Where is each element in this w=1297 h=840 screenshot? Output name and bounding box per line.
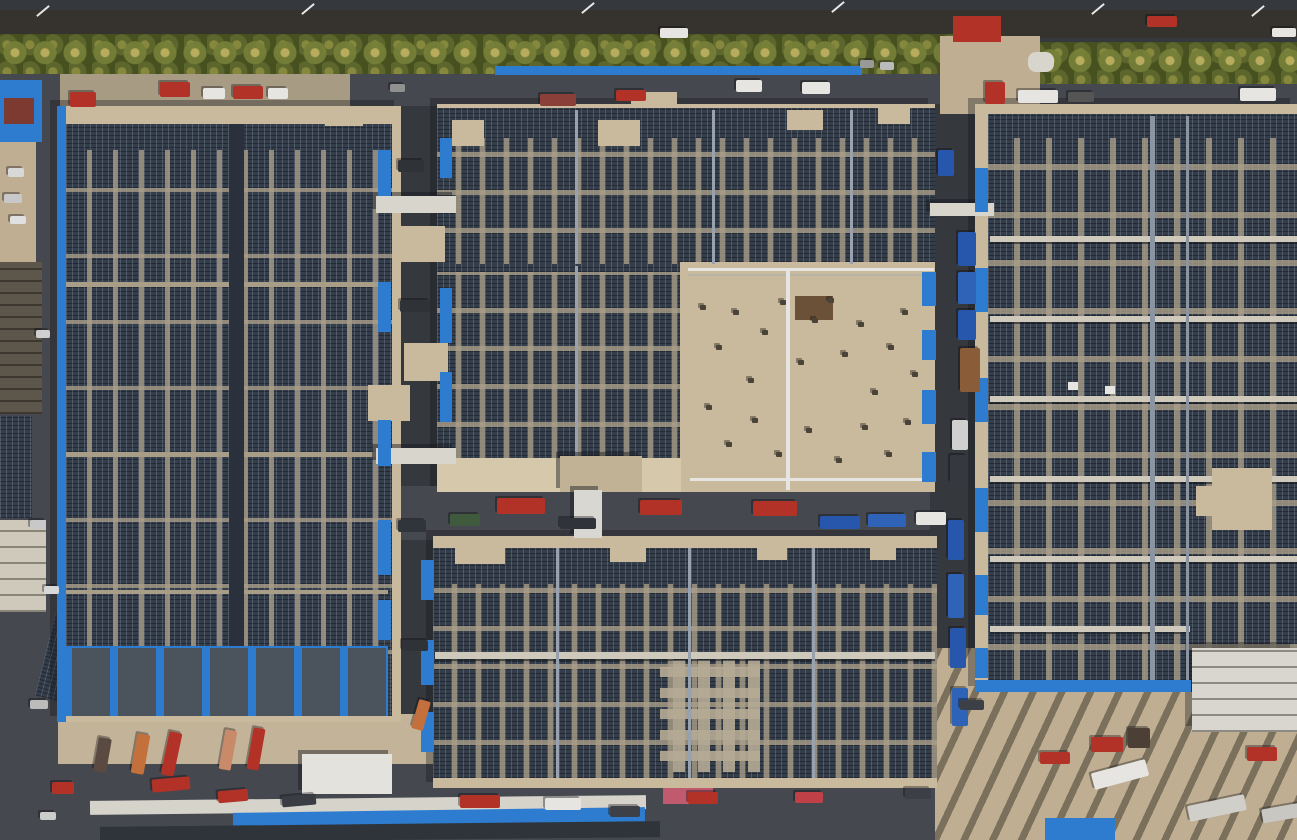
white-truck: [1240, 88, 1276, 101]
solar-walkway-grid: [437, 272, 681, 460]
hvac-unit: [776, 452, 782, 457]
blue-awning: [975, 488, 988, 532]
hvac-unit: [798, 360, 804, 365]
center-north-solar-left: [437, 264, 681, 460]
white-truck: [1018, 90, 1058, 103]
bridge-canopy: [560, 456, 642, 492]
hvac-unit: [842, 352, 848, 357]
red-truck-at-gate: [985, 82, 1005, 104]
roof-seam: [66, 452, 388, 457]
blue-trailer: [948, 520, 964, 560]
hvac-unit: [806, 428, 812, 433]
roof-ridge: [229, 124, 244, 716]
roof-structure: [455, 536, 505, 564]
red-container: [1091, 737, 1123, 752]
red-container-truck: [70, 92, 96, 107]
red-container-truck: [640, 500, 682, 515]
car: [4, 194, 22, 203]
hvac-unit: [872, 390, 878, 395]
dock-module: [164, 648, 202, 716]
roof-structure: [598, 120, 640, 146]
red-container-truck: [616, 90, 646, 101]
white-trailer: [952, 420, 968, 450]
red-container-truck: [753, 501, 797, 516]
dock-module: [302, 648, 340, 716]
roof-walkway: [990, 626, 1190, 632]
solar-walkway-grid: [988, 138, 1297, 692]
white-truck: [916, 512, 946, 525]
roof-seam: [812, 548, 815, 778]
red-container-truck: [1147, 16, 1177, 27]
blue-awning: [378, 600, 391, 640]
blue-awning: [440, 372, 452, 422]
red-container: [1040, 752, 1070, 764]
blue-awning: [421, 560, 434, 600]
dark-red-truck: [540, 94, 576, 106]
blue-awning: [922, 330, 936, 360]
solar-sparse-zone: [660, 660, 760, 772]
roof-walkway: [435, 652, 935, 659]
roof-pipe: [690, 478, 932, 481]
blue-awning: [975, 168, 988, 212]
dock-module: [72, 648, 110, 716]
equipment: [398, 160, 424, 172]
dock-module: [348, 648, 386, 716]
hvac-unit: [905, 420, 911, 425]
dark-truck: [1068, 92, 1094, 102]
dark-truck: [960, 700, 984, 710]
blue-trailer: [868, 514, 906, 527]
bridge-tower: [574, 490, 602, 538]
white-truck: [203, 88, 225, 99]
roof-seam: [850, 110, 853, 264]
dock-canopy: [400, 226, 445, 262]
blue-awning: [378, 150, 391, 196]
white-truck: [802, 82, 830, 94]
roof-seam: [712, 110, 715, 264]
red-truck: [795, 792, 823, 803]
south-blue-building: [1045, 818, 1115, 840]
skylight: [1105, 386, 1115, 394]
hvac-unit: [748, 378, 754, 383]
blue-awning: [440, 288, 452, 343]
roof-seam: [66, 590, 388, 594]
equipment: [400, 300, 430, 312]
roof-walkway: [990, 556, 1297, 562]
roof-pipe: [786, 268, 790, 490]
blue-trailer: [820, 516, 860, 529]
dock-module: [118, 648, 156, 716]
white-truck: [1272, 28, 1296, 37]
car: [8, 168, 24, 177]
green-truck: [450, 514, 480, 526]
roof-notch: [1196, 486, 1216, 516]
red-container-truck: [160, 82, 190, 97]
west-lot: [0, 142, 36, 264]
dark-container: [1128, 728, 1150, 748]
hvac-unit: [858, 322, 864, 327]
roof-structure: [128, 106, 174, 124]
roof-pipe: [688, 274, 934, 276]
car: [10, 216, 26, 224]
rust-container: [960, 348, 980, 392]
white-truck: [545, 798, 581, 810]
east-solar: [988, 114, 1297, 692]
dock-module: [256, 648, 294, 716]
west-sheds: [0, 520, 46, 612]
white-truck: [660, 28, 688, 38]
hvac-unit: [902, 310, 908, 315]
blue-awning: [975, 268, 988, 312]
roof-walkway: [990, 236, 1297, 242]
roof-seam: [575, 110, 578, 264]
blue-awning: [975, 575, 988, 615]
car: [880, 62, 894, 70]
center-north-south-strip: [437, 458, 681, 492]
red-container-truck: [233, 86, 263, 99]
roof-seam: [1186, 116, 1189, 692]
hvac-unit: [706, 405, 712, 410]
car: [30, 520, 46, 529]
blue-trailer: [938, 150, 954, 176]
white-truck: [268, 88, 288, 99]
dark-truck: [610, 806, 640, 817]
car: [40, 812, 56, 820]
roof-seam: [556, 548, 559, 778]
hvac-unit: [780, 300, 786, 305]
car: [860, 60, 874, 68]
right-building-blue-edge: [975, 680, 1191, 692]
hvac-unit: [886, 452, 892, 457]
west-small-buildings: [0, 262, 42, 414]
blue-fence: [495, 66, 862, 75]
center-south-solar: [433, 548, 937, 778]
roof-walkway: [990, 316, 1297, 322]
hvac-unit: [836, 458, 842, 463]
solar-walkway-grid: [437, 138, 935, 266]
roof-structure: [610, 538, 646, 562]
blue-trailer: [958, 310, 976, 340]
skylight: [1068, 382, 1078, 390]
roof-seam: [688, 548, 691, 778]
west-solar-array: [0, 416, 32, 518]
equipment: [402, 640, 428, 651]
roof-notch: [1212, 468, 1272, 530]
roof-structure: [243, 108, 287, 124]
hvac-unit: [716, 345, 722, 350]
red-container-truck: [497, 498, 545, 514]
road-center: [392, 486, 982, 540]
hvac-unit: [700, 305, 706, 310]
warehouse-center-south: [433, 536, 937, 788]
roof-structure: [870, 542, 896, 560]
blue-trailer: [950, 628, 966, 668]
dock-canopy: [368, 385, 410, 421]
white-canopy: [302, 754, 392, 794]
blue-awning: [975, 648, 988, 678]
blue-trailer: [958, 232, 976, 266]
roof-seam: [1150, 116, 1155, 692]
dark-truck: [905, 788, 931, 799]
hvac-unit: [733, 310, 739, 315]
gate-red-canopy: [953, 16, 1001, 42]
white-truck: [736, 80, 762, 92]
red-roof-building: [4, 98, 34, 124]
roof-pipe: [688, 268, 934, 271]
roof-seam: [66, 282, 388, 287]
dock-module: [210, 648, 248, 716]
car: [30, 700, 48, 709]
equipment: [398, 520, 426, 532]
gate-house: [1028, 52, 1054, 72]
hvac-unit: [726, 442, 732, 447]
blue-awning: [378, 420, 391, 466]
blue-trailer: [948, 574, 964, 618]
warehouse-center-north: [437, 104, 935, 492]
roof-seam: [575, 266, 578, 458]
hvac-unit: [762, 330, 768, 335]
car: [44, 586, 59, 594]
aerial-factory-photo: [0, 0, 1297, 840]
blue-awning: [440, 138, 452, 178]
hvac-unit: [912, 372, 918, 377]
roof-structure: [325, 110, 363, 126]
car: [36, 330, 50, 338]
hvac-unit: [828, 298, 834, 303]
red-container-truck: [460, 795, 500, 808]
car: [390, 84, 405, 92]
roof-structure: [757, 540, 787, 560]
blue-trailer: [958, 272, 976, 304]
walkway-bridge: [376, 196, 456, 213]
red-truck: [52, 782, 74, 794]
red-container: [1247, 747, 1277, 761]
blue-awning: [922, 452, 936, 482]
roof-structure: [452, 120, 484, 146]
hvac-unit: [862, 425, 868, 430]
hvac-unit: [752, 418, 758, 423]
blue-awning: [378, 520, 391, 575]
hvac-unit: [888, 345, 894, 350]
dark-truck: [560, 518, 596, 529]
roof-structure: [787, 110, 823, 130]
dark-trailer: [950, 455, 967, 483]
blue-awning: [922, 390, 936, 424]
center-north-solar-top: [437, 108, 935, 266]
red-truck: [688, 792, 718, 804]
roof-structure: [878, 106, 910, 124]
southeast-white-building: [1192, 648, 1297, 732]
blue-awning: [378, 282, 391, 332]
blue-awning: [922, 272, 936, 306]
roof-walkway: [990, 396, 1297, 402]
hvac-unit: [812, 318, 818, 323]
